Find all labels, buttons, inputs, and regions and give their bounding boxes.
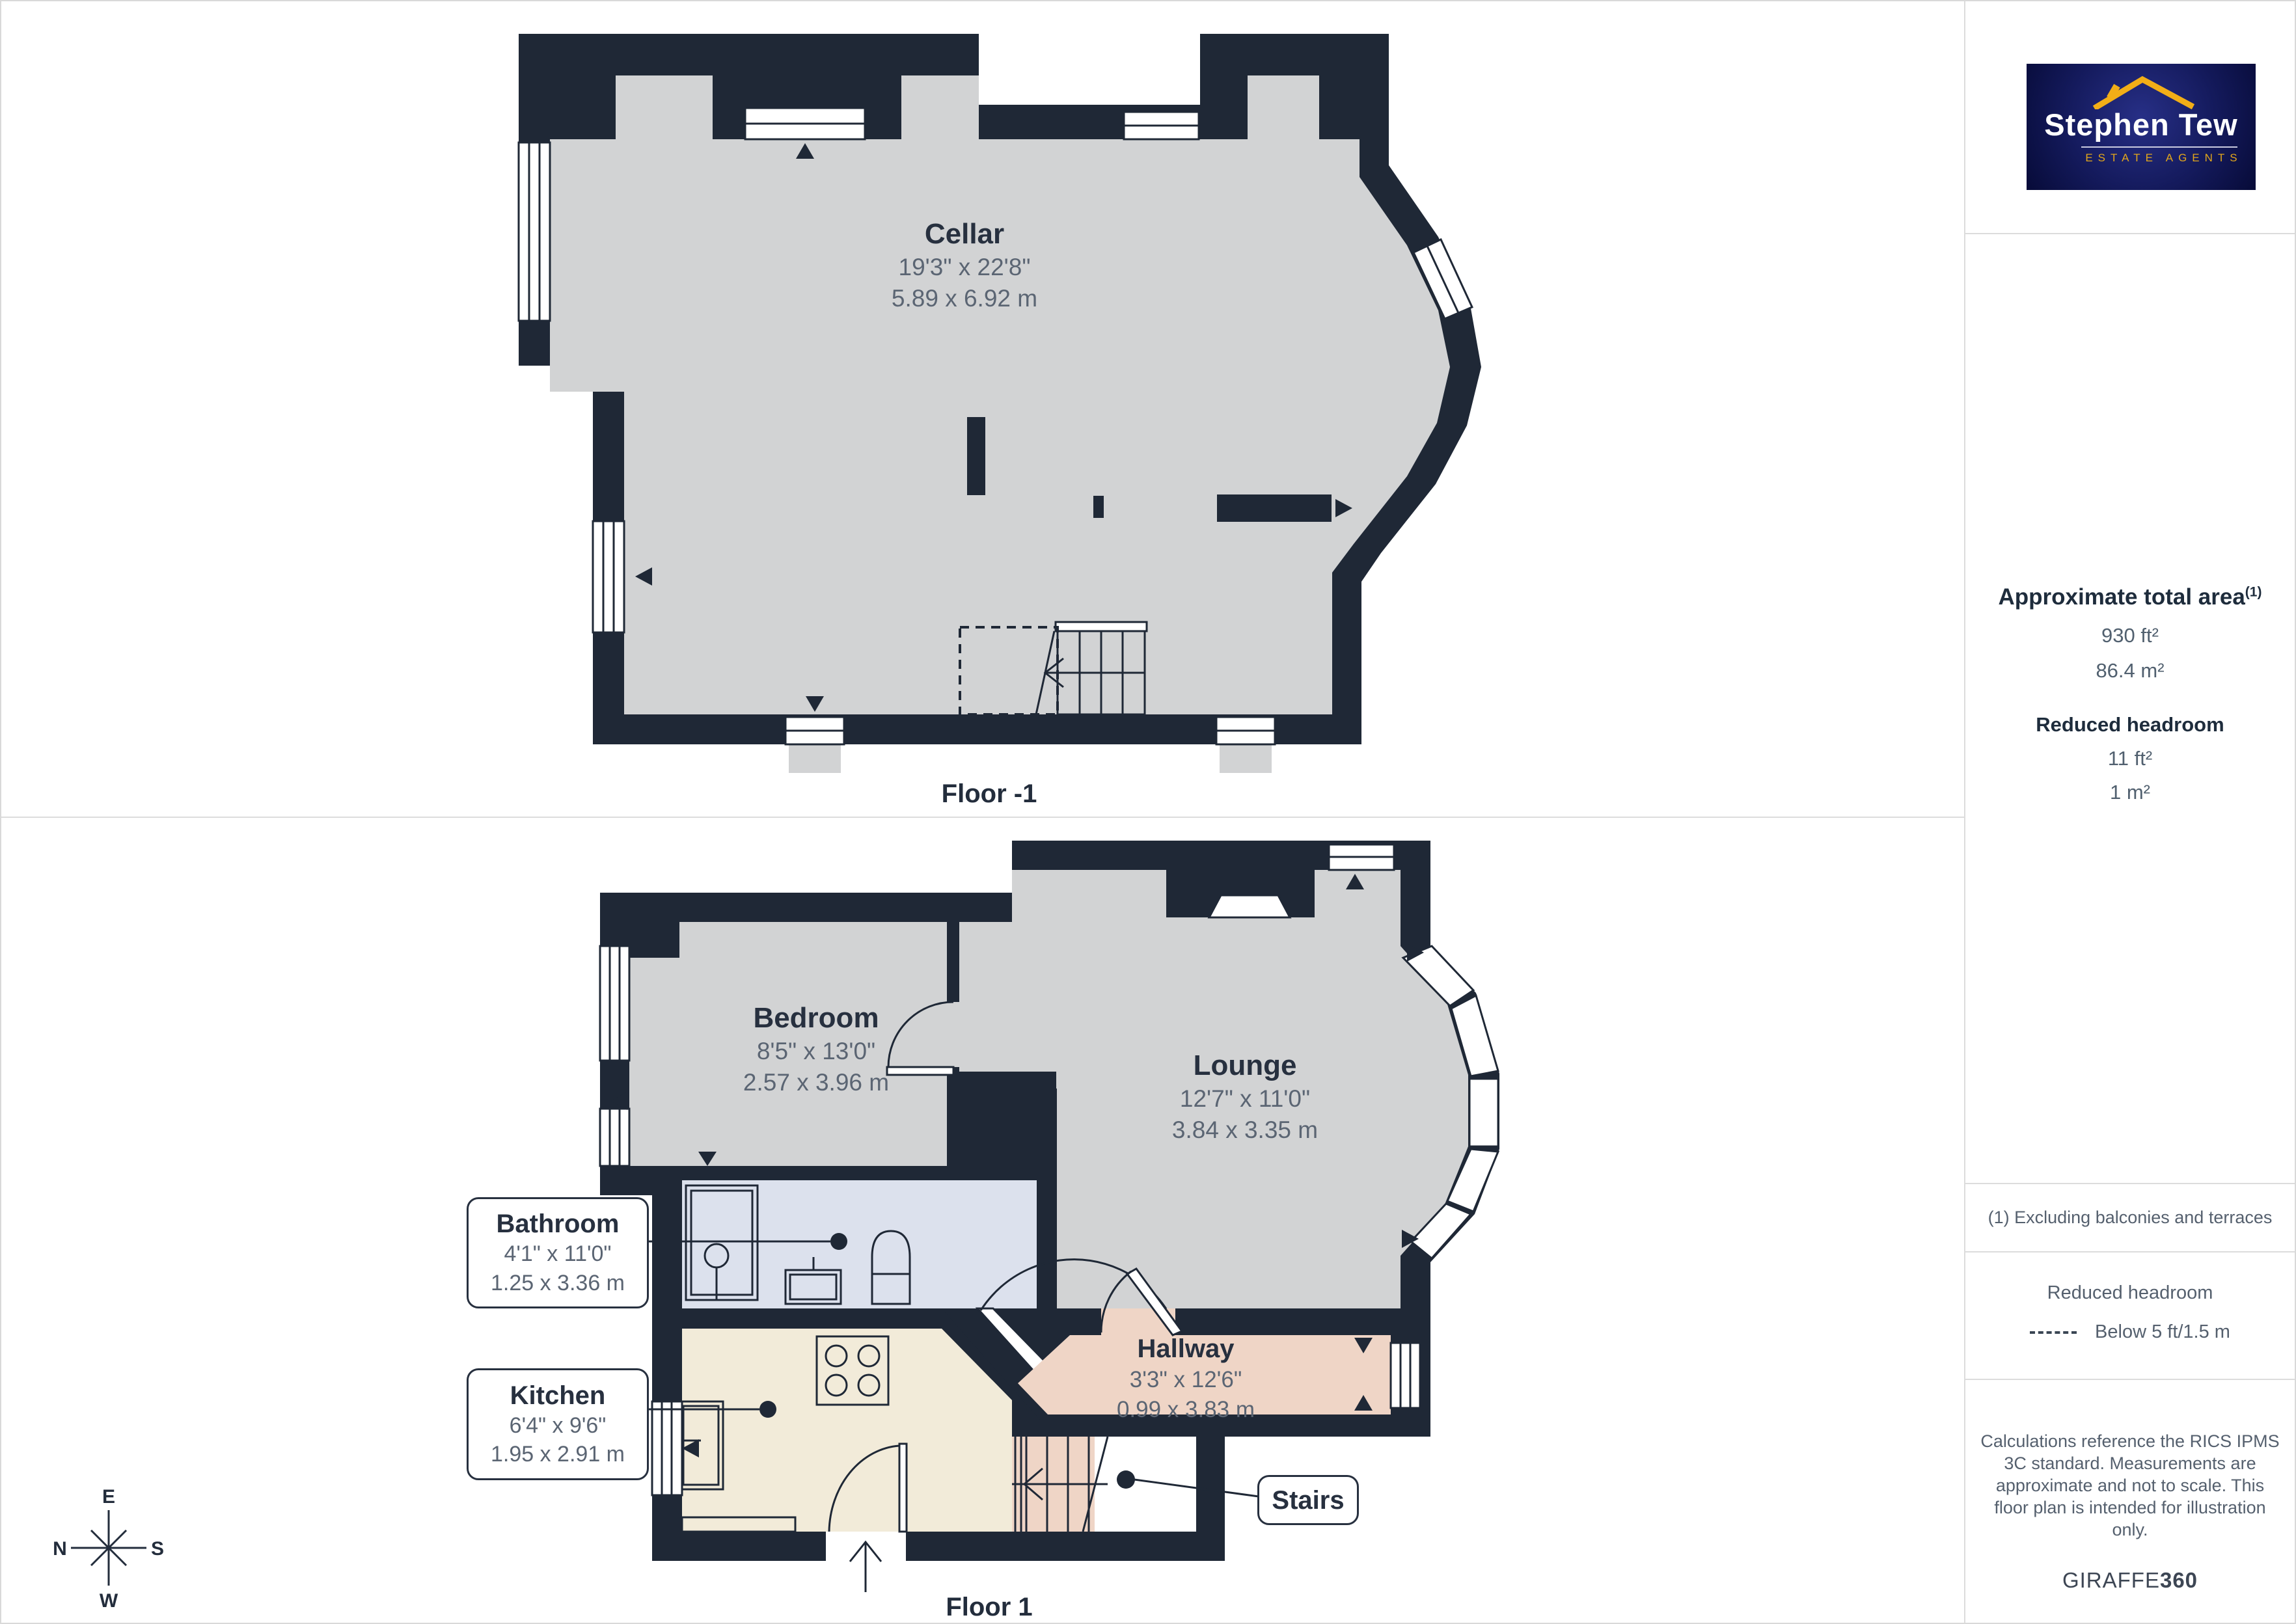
bedroom-floor — [629, 922, 947, 1166]
room-dims-metric: 1.25 x 3.36 m — [469, 1269, 647, 1297]
floor-1-caption: Floor 1 — [892, 1593, 1087, 1622]
cellar-wall-pocket — [616, 75, 713, 141]
bedroom-corner-step — [629, 922, 679, 958]
disclaimer-line: 3C standard. Measurements are — [1967, 1452, 2293, 1474]
bathroom-floor — [682, 1180, 1037, 1308]
room-dims-imperial: 4'1" x 11'0" — [469, 1239, 647, 1268]
legend-row: Below 5 ft/1.5 m — [1967, 1321, 2293, 1343]
floor-minus1-plan — [1, 1, 1964, 817]
cellar-wall-pocket — [901, 75, 979, 141]
room-dims-metric: 1.95 x 2.91 m — [469, 1440, 647, 1468]
reduced-headroom-metric: 1 m² — [1967, 781, 2293, 804]
floorplan-page: Cellar 19'3" x 22'8" 5.89 x 6.92 m Floor… — [0, 0, 2296, 1624]
compass-rose: E N S W — [40, 1480, 177, 1616]
bedroom-lounge-wall — [1037, 1089, 1056, 1180]
dashed-line-icon — [2030, 1331, 2077, 1334]
legend-title: Reduced headroom — [1967, 1282, 2293, 1304]
total-area-imperial: 930 ft² — [1967, 624, 2293, 647]
fireplace — [1209, 895, 1290, 917]
reduced-headroom-title: Reduced headroom — [1967, 713, 2293, 737]
disclaimer-line: Calculations reference the RICS IPMS — [1967, 1430, 2293, 1452]
total-area-title: Approximate total area(1) — [1967, 584, 2293, 610]
stairs-callout: Stairs — [1257, 1475, 1359, 1525]
floor-1-plan — [1, 817, 1964, 1624]
reduced-headroom-imperial: 11 ft² — [1967, 747, 2293, 770]
panel-divider — [1, 817, 1964, 818]
disclaimer-line: floor plan is intended for illustration — [1967, 1496, 2293, 1519]
total-area-metric: 86.4 m² — [1967, 659, 2293, 683]
bedroom-lounge-wall — [947, 1072, 1056, 1089]
cellar-wall-stub — [1093, 496, 1104, 518]
roof-icon — [2092, 75, 2196, 109]
provider-suffix: 360 — [2160, 1568, 2198, 1592]
room-dims-imperial: 6'4" x 9'6" — [469, 1411, 647, 1440]
kitchen-callout: Kitchen 6'4" x 9'6" 1.95 x 2.91 m — [467, 1368, 649, 1480]
cellar-light-well — [789, 744, 841, 773]
bathroom-callout-dot — [830, 1233, 847, 1250]
kitchen-window — [652, 1401, 682, 1495]
provider-logo: GIRAFFE360 — [1967, 1568, 2293, 1593]
disclaimer-line: only. — [1967, 1519, 2293, 1541]
disclaimer: Calculations reference the RICS IPMS 3C … — [1967, 1430, 2293, 1541]
agency-tagline: ESTATE AGENTS — [2027, 152, 2256, 165]
compass-top: E — [102, 1486, 115, 1508]
sidebar-section-divider — [1964, 233, 2296, 234]
bedroom-door-opening — [947, 1002, 959, 1067]
kitchen-callout-dot — [759, 1401, 776, 1418]
compass-left: N — [53, 1538, 67, 1560]
hallway-floor — [1018, 1335, 1391, 1414]
sidebar-section-divider — [1964, 1251, 2296, 1252]
logo-rule — [2081, 146, 2237, 148]
sidebar-section-divider — [1964, 1183, 2296, 1184]
sidebar-section-divider — [1964, 1379, 2296, 1380]
agency-logo: Stephen Tew ESTATE AGENTS — [2027, 64, 2256, 190]
compass-right: S — [151, 1538, 164, 1560]
floor-minus1-caption: Floor -1 — [892, 779, 1087, 809]
hallway-window — [1391, 1343, 1420, 1408]
room-name: Stairs — [1259, 1485, 1357, 1516]
area-footnote: (1) Excluding balconies and terraces — [1967, 1206, 2293, 1228]
provider-name: GIRAFFE — [2062, 1568, 2160, 1592]
compass-bottom: W — [100, 1590, 118, 1612]
cellar-wall-pocket — [1248, 75, 1319, 141]
bedroom-windows — [600, 946, 629, 1166]
sidebar-divider — [1964, 1, 1965, 1624]
legend-item-label: Below 5 ft/1.5 m — [2095, 1321, 2230, 1342]
agency-name: Stephen Tew — [2027, 107, 2256, 142]
room-name: Kitchen — [469, 1380, 647, 1411]
bathroom-callout: Bathroom 4'1" x 11'0" 1.25 x 3.36 m — [467, 1197, 649, 1308]
lounge-top-window — [1329, 845, 1394, 870]
cellar-interior-wall — [1217, 494, 1332, 522]
room-name: Bathroom — [469, 1208, 647, 1239]
footnote-marker: (1) — [2245, 584, 2262, 599]
cellar-light-well — [1220, 744, 1272, 773]
disclaimer-line: approximate and not to scale. This — [1967, 1474, 2293, 1496]
cellar-pillar — [967, 417, 985, 495]
kitchen-counter — [682, 1517, 795, 1532]
